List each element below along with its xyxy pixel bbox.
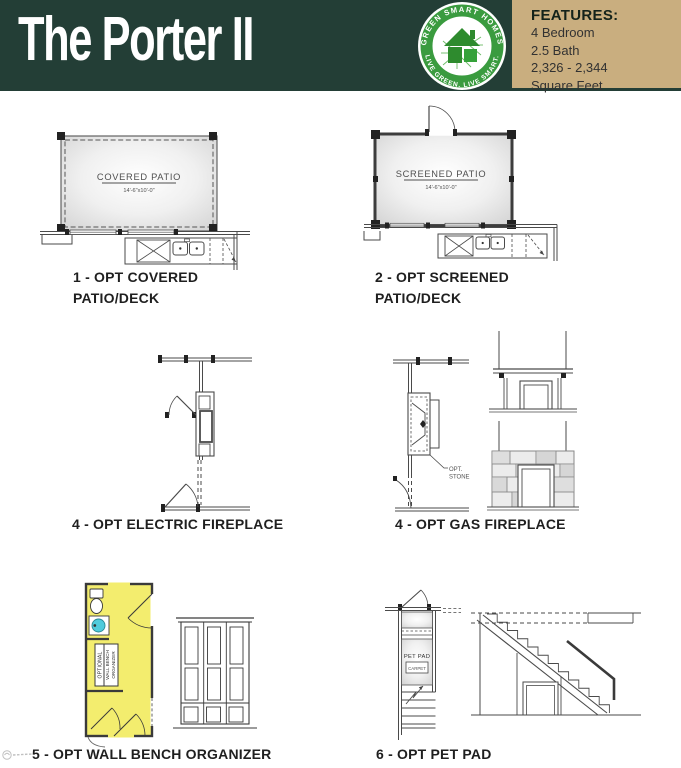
features-bedrooms: 4 Bedroom	[531, 24, 681, 42]
upper-door-swing	[165, 396, 196, 418]
electric-fireplace-plan	[140, 348, 260, 518]
covered-patio-plan: COVERED PATIO 14'-6"x10'-0"	[40, 122, 290, 270]
electric-fireplace-unit	[196, 392, 214, 456]
organizer-tag-organizer: ORGANIZER	[111, 651, 116, 679]
bottom-wall	[393, 476, 469, 511]
room-label: SCREENED PATIO	[396, 169, 487, 179]
sink-vanity	[89, 616, 109, 635]
caption-pet-pad: 6 - OPT PET PAD	[376, 744, 492, 765]
upper-shelf	[402, 612, 433, 635]
watermark-signature	[1, 746, 35, 762]
room-dimensions: 14'-6"x10'-0"	[425, 185, 456, 191]
door-swing	[429, 106, 455, 132]
organizer-elevation	[173, 618, 257, 728]
stone-fireplace-elevation	[487, 421, 579, 510]
stairs-plan	[402, 686, 436, 728]
gas-fireplace-unit	[408, 393, 439, 455]
house-wall	[40, 229, 250, 235]
room-dimensions: 14'-6"x10'-0"	[123, 188, 154, 194]
screened-patio-plan: SCREENED PATIO 14'-6"x10'-0"	[350, 103, 600, 265]
opt-stone-note-1: OPT.	[449, 467, 463, 473]
lower-door-swing	[165, 484, 198, 507]
handrail	[567, 641, 614, 700]
features-baths: 2.5 Bath	[531, 42, 681, 60]
room-label: COVERED PATIO	[97, 172, 181, 182]
page-title: The Porter II	[18, 4, 253, 75]
caption-covered-patio: 1 - OPT COVERED PATIO/DECK	[73, 267, 198, 308]
stair-elevation	[471, 613, 641, 715]
understair-door	[523, 682, 558, 715]
pet-pad-sublabel: CARPET	[408, 666, 426, 671]
mantel-elevation	[489, 331, 577, 412]
header-band: The Porter II FEATURES: 4 Bedroom 2.5 Ba…	[0, 0, 681, 91]
entry-step	[42, 235, 72, 244]
features-box: FEATURES: 4 Bedroom 2.5 Bath 2,326 - 2,3…	[512, 0, 681, 88]
green-smart-homes-badge: GREEN SMART HOMES LIVE GREEN. LIVE SMART…	[417, 1, 507, 91]
pet-pad-label: PET PAD	[404, 654, 430, 660]
features-sqft-label: Square Feet	[531, 77, 681, 95]
flyer-page: The Porter II FEATURES: 4 Bedroom 2.5 Ba…	[0, 0, 681, 768]
features-sqft-range: 2,326 - 2,344	[531, 59, 681, 77]
entry-step	[364, 231, 380, 240]
opt-stone-leader	[430, 455, 448, 468]
bottom-wall	[161, 504, 250, 512]
organizer-tag-wall-bench: WALL BENCH	[105, 650, 110, 680]
gas-fireplace-plan: OPT. STONE	[385, 329, 595, 515]
pet-pad-nook	[402, 639, 433, 685]
top-wall	[393, 357, 469, 365]
caption-electric-fireplace: 4 - OPT ELECTRIC FIREPLACE	[72, 514, 283, 535]
caption-wall-bench: 5 - OPT WALL BENCH ORGANIZER	[32, 744, 271, 765]
kitchen-counter	[438, 234, 547, 258]
wall-bench-organizer-plan: OPTIONAL WALL BENCH ORGANIZER	[78, 576, 278, 748]
organizer-tag-optional: OPTIONAL	[97, 652, 103, 679]
kitchen-counter	[125, 232, 237, 271]
toilet	[90, 589, 103, 614]
pet-pad-plan: PET PAD CARPET	[383, 582, 648, 752]
opt-stone-note-2: STONE	[449, 475, 470, 481]
caption-screened-patio: 2 - OPT SCREENED PATIO/DECK	[375, 267, 509, 308]
features-heading: FEATURES:	[531, 7, 681, 24]
top-wall	[158, 355, 252, 363]
patio-area	[61, 136, 217, 231]
caption-gas-fireplace: 4 - OPT GAS FIREPLACE	[395, 514, 566, 535]
